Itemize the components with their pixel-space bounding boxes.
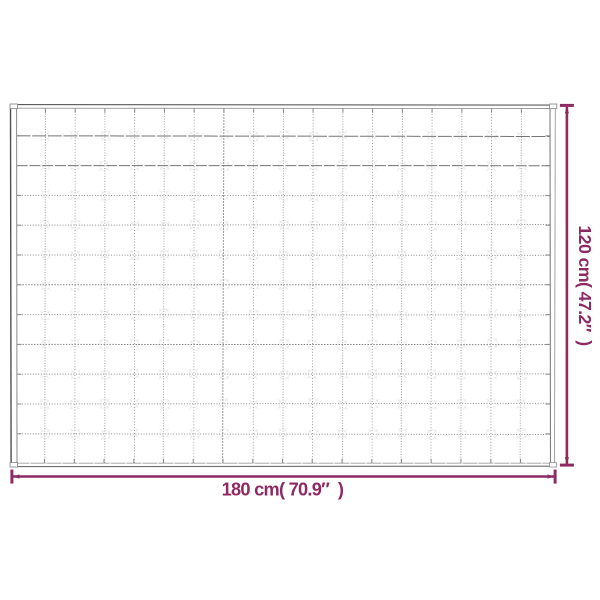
- svg-text:180 cm( 70.9″ ): 180 cm( 70.9″ ): [222, 479, 344, 499]
- svg-text:120 cm( 47.2″ ): 120 cm( 47.2″ ): [575, 225, 595, 346]
